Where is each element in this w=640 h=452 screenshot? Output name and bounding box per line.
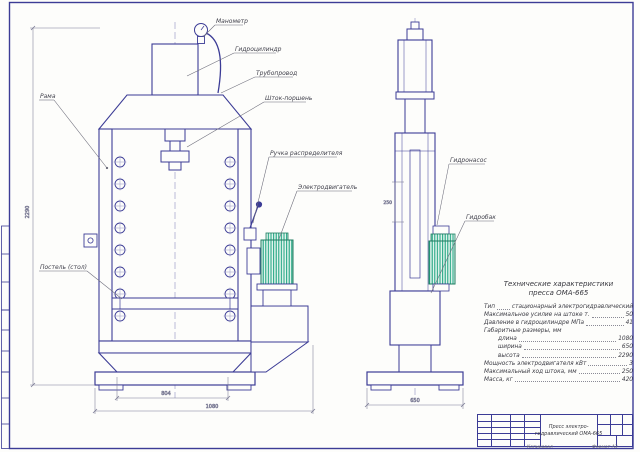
- spec-label: Максимальный ход штока, мм: [484, 368, 577, 376]
- side-neck: [405, 99, 425, 133]
- spec-leader: [588, 365, 627, 366]
- spec-label: Габаритные размеры, мм: [484, 327, 561, 335]
- callout-text-hydro-tank: Гидробак: [466, 214, 496, 221]
- side-top-fitting: [407, 29, 423, 40]
- spec-leader: [524, 349, 620, 350]
- side-base: [367, 372, 463, 385]
- dim-text-overall-height: 2290: [25, 206, 31, 219]
- callout-pipeline: Трубопровод: [221, 70, 297, 93]
- pressure-gauge: [195, 24, 208, 44]
- press-head: [99, 95, 251, 129]
- technical-specs: Технические характеристики пресса ОМА-66…: [484, 280, 633, 384]
- spec-row-pressure: Давление в гидроцилиндре МПа 41: [484, 319, 633, 327]
- electric-motor-front: [247, 233, 297, 306]
- spec-row-motor-power: Мощность электродвигателя кВт 3: [484, 360, 633, 368]
- specs-rows: Тип стационарный электрогидравлический М…: [484, 303, 633, 384]
- spec-row-max-force: Максимальное усилие на штоке т. 50: [484, 311, 633, 319]
- dim-text-base-width: 804: [161, 391, 171, 397]
- callout-text-hydrocylinder: Гидроцилиндр: [235, 46, 282, 53]
- callout-manometer: Манометр: [203, 18, 248, 37]
- electric-motor-side: [429, 226, 455, 291]
- spec-label: Масса, кг: [484, 376, 513, 384]
- spec-value: стационарный электрогидравлический: [512, 303, 633, 311]
- specs-title-line1: Технические характеристики: [484, 280, 633, 289]
- press-base: [95, 341, 255, 390]
- spec-row-length: длина 1080: [484, 335, 633, 343]
- spec-label: длина: [498, 335, 517, 343]
- copied-label: Копировал: [527, 445, 553, 450]
- specs-title-line2: пресса ОМА-665: [484, 289, 633, 298]
- hydraulic-cylinder: [152, 44, 198, 95]
- spec-value: 420: [622, 376, 633, 384]
- callout-text-hydro-pump: Гидронасос: [450, 157, 487, 164]
- spec-row-width: ширина 650: [484, 343, 633, 351]
- spec-row-height: высота 2290: [484, 352, 633, 360]
- spec-label: высота: [498, 352, 520, 360]
- title-block-signature-table: [478, 415, 541, 446]
- spec-leader: [519, 341, 616, 342]
- side-view: [367, 18, 463, 400]
- format-label: Формат А3: [592, 445, 618, 450]
- title-block-name-line1: Пресс электро-: [549, 424, 589, 430]
- spec-value: 3: [629, 360, 633, 368]
- frame-column-left: [99, 129, 112, 341]
- dim-text-stroke: 250: [383, 200, 392, 206]
- title-block-grid: [598, 415, 632, 446]
- spec-label: Максимальное усилие на штоке т.: [484, 311, 590, 319]
- spec-value: 2290: [618, 352, 633, 360]
- spec-value: 41: [626, 319, 633, 327]
- spec-leader: [515, 381, 620, 382]
- callout-frame: Рама: [39, 93, 108, 169]
- front-view: [84, 22, 308, 398]
- hydro-pump-body: [433, 226, 449, 234]
- side-handle: [84, 234, 97, 247]
- title-block-name: Пресс электро- гидравлический ОМА-665: [541, 415, 598, 446]
- callout-text-electric-motor: Электродвигатель: [297, 184, 358, 191]
- dim-text-overall-length: 1080: [206, 404, 219, 410]
- drawing-sheet: 2290 804 1080 650: [0, 0, 640, 452]
- callout-text-pipeline: Трубопровод: [256, 70, 297, 77]
- spec-leader: [522, 357, 617, 358]
- callout-text-frame: Рама: [40, 93, 56, 100]
- spec-leader: [592, 317, 624, 318]
- side-pedestal: [399, 345, 431, 372]
- spec-label: ширина: [498, 343, 522, 351]
- title-block: Пресс электро- гидравлический ОМА-665: [477, 414, 633, 447]
- dim-overall-height: 2290: [25, 26, 100, 387]
- spec-value: 1080: [618, 335, 633, 343]
- spec-label: Тип: [484, 303, 495, 311]
- dim-text-side-width: 650: [410, 398, 420, 404]
- spec-value: 650: [622, 343, 633, 351]
- spec-row-mass: Масса, кг 420: [484, 376, 633, 384]
- pump-platform: [251, 306, 308, 372]
- spec-label: Давление в гидроцилиндре МПа: [484, 319, 584, 327]
- side-cylinder: [398, 40, 432, 92]
- spec-row-type: Тип стационарный электрогидравлический: [484, 303, 633, 311]
- side-rod: [410, 150, 420, 278]
- spec-leader: [579, 373, 620, 374]
- callout-text-manometer: Манометр: [216, 18, 248, 25]
- frame-left-strip: [2, 226, 10, 449]
- rod-piston-assembly: [161, 129, 189, 170]
- hydro-tank-body: [390, 291, 440, 345]
- spec-label: Мощность электродвигателя кВт: [484, 360, 586, 368]
- title-block-name-line2: гидравлический ОМА-665: [535, 431, 602, 437]
- spec-value: 50: [626, 311, 633, 319]
- drawing-canvas: 2290 804 1080 650: [0, 0, 640, 452]
- callout-text-rod-piston: Шток-поршень: [265, 95, 313, 102]
- spec-value: 250: [622, 368, 633, 376]
- bed-table: [112, 298, 238, 309]
- spec-row-dimensions-header: Габаритные размеры, мм: [484, 327, 633, 335]
- side-flange: [396, 92, 434, 99]
- callout-electric-motor: Электродвигатель: [279, 184, 358, 239]
- callout-text-bed-table: Постель (стол): [40, 264, 87, 271]
- callout-text-distributor-handle: Ручка распределителя: [270, 150, 343, 157]
- spec-leader: [586, 325, 624, 326]
- spec-row-max-stroke: Максимальный ход штока, мм 250: [484, 368, 633, 376]
- spec-leader: [497, 309, 510, 310]
- side-top-cap: [411, 22, 419, 29]
